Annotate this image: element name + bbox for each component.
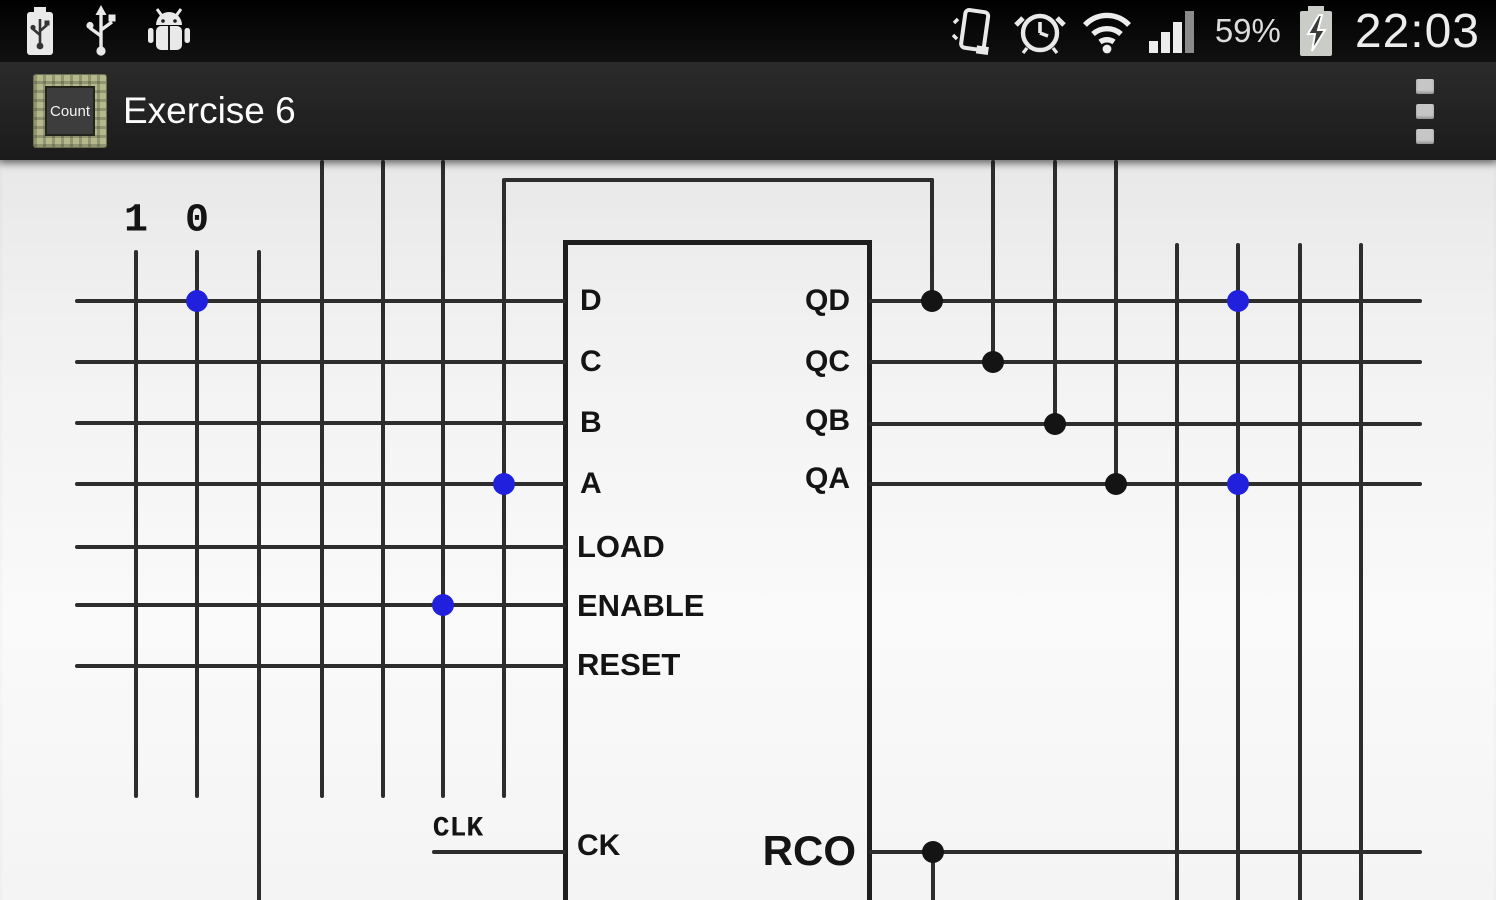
wire-output-qb[interactable] bbox=[869, 422, 1422, 426]
pin-label-enable: ENABLE bbox=[577, 588, 704, 624]
battery-percent-text: 59% bbox=[1215, 12, 1281, 50]
pin-label-rco: RCO bbox=[763, 827, 856, 875]
app-icon[interactable]: Count bbox=[33, 74, 107, 148]
usb-battery-icon bbox=[20, 5, 60, 57]
pin-label-clk: CLK bbox=[433, 814, 483, 845]
wire-right-col-2[interactable] bbox=[1236, 243, 1240, 900]
wire-right-col-3[interactable] bbox=[1298, 243, 1302, 900]
overflow-dot bbox=[1416, 129, 1434, 144]
connection-dot-qd-junction[interactable] bbox=[921, 290, 943, 312]
chip-icon: Count bbox=[45, 86, 95, 136]
pin-label-qc: QC bbox=[805, 345, 850, 379]
action-bar: Count Exercise 6 bbox=[0, 62, 1496, 160]
pin-label-qb: QB bbox=[805, 404, 850, 438]
pin-label-a: A bbox=[580, 467, 602, 501]
overflow-menu-button[interactable] bbox=[1408, 69, 1442, 154]
wire-col-1[interactable] bbox=[134, 250, 138, 798]
status-bar-right: 59% 22:03 bbox=[949, 4, 1496, 59]
pin-label-d: D bbox=[580, 284, 602, 318]
wire-output-qa[interactable] bbox=[869, 482, 1422, 486]
connection-dot-d-row-col0[interactable] bbox=[186, 290, 208, 312]
overflow-dot bbox=[1416, 79, 1434, 94]
wire-col-3[interactable] bbox=[257, 250, 261, 900]
wire-qa-drop[interactable] bbox=[1114, 160, 1118, 484]
wire-right-col-1[interactable] bbox=[1175, 243, 1179, 900]
status-bar: 59% 22:03 bbox=[0, 0, 1496, 62]
counter-chip-body bbox=[563, 240, 872, 900]
connection-dot-qa-junction[interactable] bbox=[1105, 473, 1127, 495]
connection-dot-rco-junction[interactable] bbox=[922, 841, 944, 863]
wire-right-col-4[interactable] bbox=[1359, 243, 1363, 900]
wire-output-qd[interactable] bbox=[869, 299, 1422, 303]
alarm-clock-icon bbox=[1013, 5, 1067, 57]
connection-dot-a-row-col7[interactable] bbox=[493, 473, 515, 495]
wire-col-0[interactable] bbox=[195, 250, 199, 798]
connection-dot-qd-row-right[interactable] bbox=[1227, 290, 1249, 312]
wire-output-rco[interactable] bbox=[869, 850, 1422, 854]
pin-label-0: 0 bbox=[185, 199, 209, 244]
battery-charging-icon bbox=[1295, 4, 1337, 58]
status-bar-left bbox=[0, 4, 196, 58]
wire-qb-drop[interactable] bbox=[1053, 160, 1057, 424]
wire-qc-drop[interactable] bbox=[991, 160, 995, 362]
signal-strength-icon bbox=[1147, 7, 1199, 55]
pin-label-reset: RESET bbox=[577, 647, 680, 683]
pin-label-qa: QA bbox=[805, 462, 850, 496]
pin-label-c: C bbox=[580, 345, 602, 379]
pin-label-qd: QD bbox=[805, 284, 850, 318]
page-title: Exercise 6 bbox=[123, 90, 296, 132]
usb-icon bbox=[82, 4, 120, 58]
android-debug-icon bbox=[142, 5, 196, 57]
overflow-dot bbox=[1416, 104, 1434, 119]
pin-label-b: B bbox=[580, 406, 602, 440]
wire-col-6[interactable] bbox=[441, 160, 445, 798]
wire-clk-stub[interactable] bbox=[432, 850, 566, 854]
wire-col-4[interactable] bbox=[320, 160, 324, 798]
wire-output-qc[interactable] bbox=[869, 360, 1422, 364]
connection-dot-qb-junction[interactable] bbox=[1044, 413, 1066, 435]
wifi-icon bbox=[1079, 7, 1135, 55]
connection-dot-qa-row-right[interactable] bbox=[1227, 473, 1249, 495]
wire-qd-drop[interactable] bbox=[930, 178, 934, 301]
clock-text: 22:03 bbox=[1355, 4, 1486, 59]
wire-feedback-top[interactable] bbox=[504, 178, 934, 182]
circuit-canvas[interactable]: DCBALOADENABLERESETCKQDQCQBQARCO10CLK bbox=[0, 160, 1496, 900]
vibrate-icon bbox=[949, 5, 1001, 57]
connection-dot-enable-row-col6[interactable] bbox=[432, 594, 454, 616]
pin-label-load: LOAD bbox=[577, 529, 665, 565]
pin-label-1: 1 bbox=[124, 199, 148, 244]
wire-col-5[interactable] bbox=[381, 160, 385, 798]
connection-dot-qc-junction[interactable] bbox=[982, 351, 1004, 373]
pin-label-ck: CK bbox=[577, 829, 620, 863]
app-icon-label: Count bbox=[50, 103, 90, 120]
